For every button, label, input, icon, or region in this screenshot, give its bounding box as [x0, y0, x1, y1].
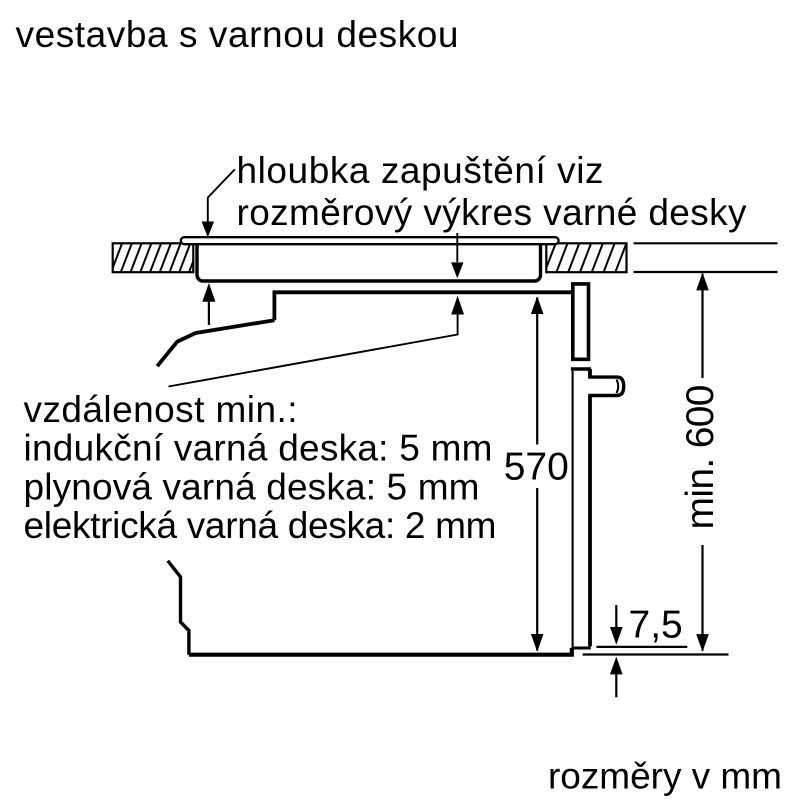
svg-text:elektrická varná deska: 2 mm: elektrická varná deska: 2 mm	[24, 505, 497, 546]
svg-text:570: 570	[504, 446, 569, 489]
svg-text:plynová varná deska: 5 mm: plynová varná deska: 5 mm	[24, 467, 480, 508]
svg-text:rozměrový výkres varné desky: rozměrový výkres varné desky	[237, 192, 748, 233]
svg-text:7,5: 7,5	[629, 604, 683, 647]
svg-text:vzdálenost min.:: vzdálenost min.:	[24, 389, 298, 430]
svg-text:hloubka zapuštění viz: hloubka zapuštění viz	[237, 150, 604, 191]
svg-text:vestavba s varnou deskou: vestavba s varnou deskou	[16, 14, 459, 55]
svg-text:min. 600: min. 600	[679, 385, 722, 530]
svg-text:indukční varná deska: 5 mm: indukční varná deska: 5 mm	[24, 428, 493, 469]
svg-text:rozměry v mm: rozměry v mm	[548, 756, 782, 797]
